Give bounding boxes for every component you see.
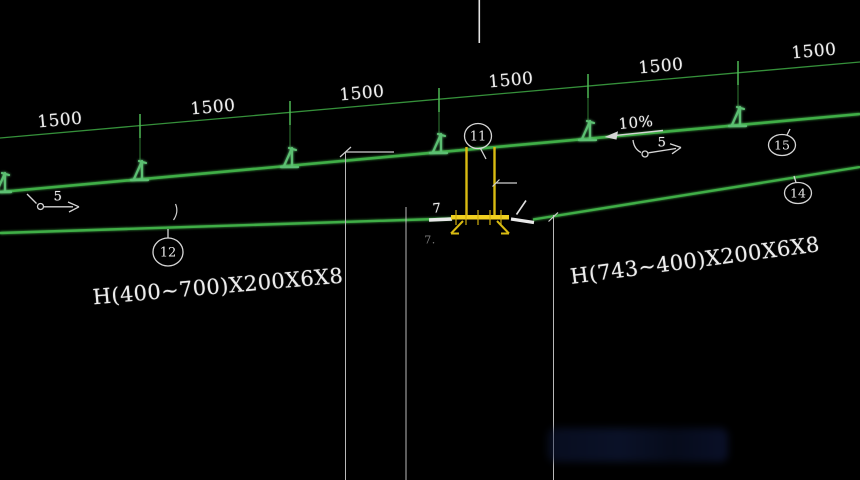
weld-arc-mark	[174, 204, 177, 220]
splice-plate	[451, 215, 509, 220]
column-splice-highlight	[451, 147, 509, 234]
beam-bottom-flange-left-line	[0, 219, 452, 234]
detail-bubbles: 11 12 14 15	[153, 124, 812, 267]
bubble-11-number: 11	[470, 130, 487, 145]
flange-leader	[493, 180, 518, 187]
spacing-dimension-label: 1500	[638, 56, 685, 77]
weld-tick-right	[517, 201, 527, 215]
spacing-dimension-label: 1500	[791, 41, 838, 62]
slope-label: 10%	[618, 114, 654, 132]
plate-edge-highlight-right	[511, 219, 534, 223]
bubble-14-number: 14	[790, 186, 806, 201]
plate-edge-highlight-left	[429, 219, 452, 220]
bubble-15-leader	[787, 129, 790, 135]
apex-leader	[340, 147, 394, 157]
splice-stiffener-diagonals	[451, 221, 509, 234]
spacing-dimension-label: 1500	[488, 70, 535, 91]
plate-note-label: 7.	[424, 235, 436, 246]
cad-drawing-canvas[interactable]: 11 12 14 15 1500 1500 1500 1500 1500 150…	[0, 0, 860, 480]
weld-size-label-right: 5	[658, 137, 667, 150]
weld-size-label-left: 5	[54, 191, 63, 204]
bubble-11-leader	[481, 149, 487, 160]
spacing-dimension-label: 1500	[190, 97, 237, 118]
bubble-15-number: 15	[774, 138, 790, 153]
bubble-12-number: 12	[160, 246, 177, 261]
weld-size-label-plate: 7	[432, 202, 442, 216]
spacing-dimension-label: 1500	[339, 83, 386, 104]
watermark-blob	[548, 428, 728, 462]
extension-lines	[346, 152, 554, 480]
spacing-dimension-label: 1500	[37, 110, 84, 131]
